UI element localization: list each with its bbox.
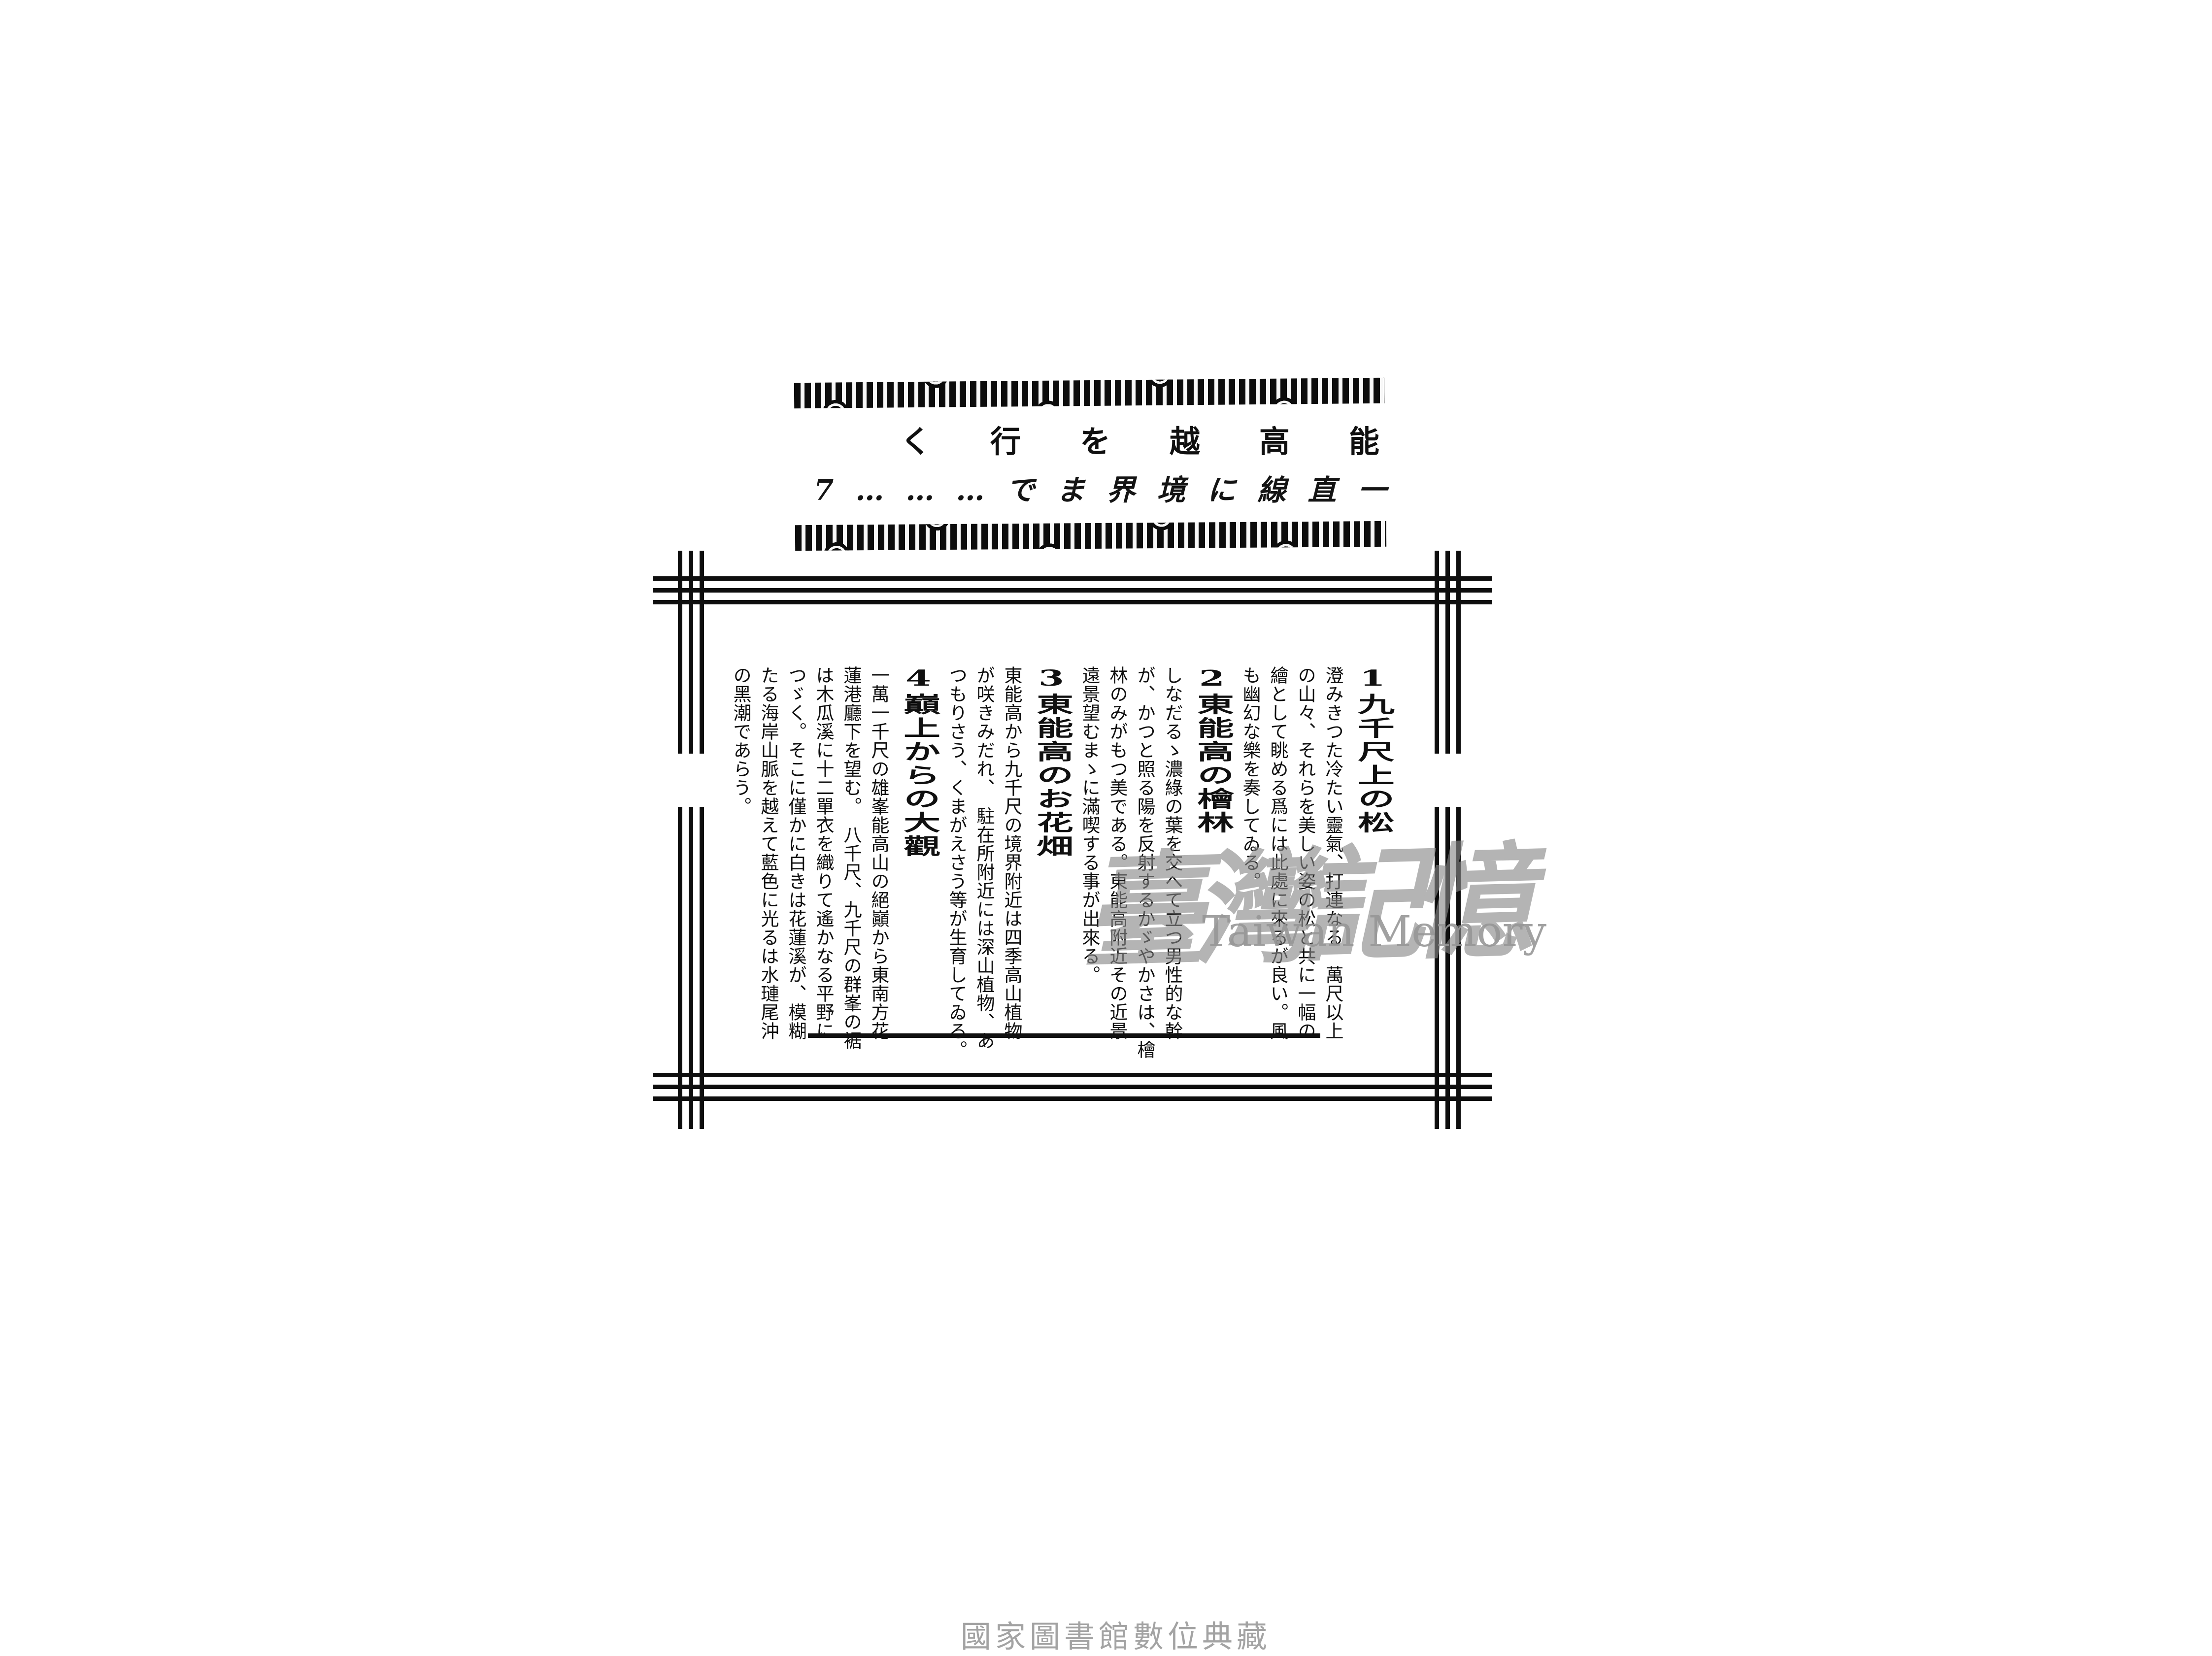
woodgrain-strip-bottom <box>795 521 1386 551</box>
woodgrain-strip-top <box>794 378 1384 408</box>
section-4-heading: 4巔上からの大觀 <box>896 666 939 1065</box>
frame-rule-left-upper <box>678 551 704 754</box>
section-3-flower-field: 3東能高のお花畑 東能高から九千尺の境界附近は四季高山植物 が咲きみだれ、 駐在… <box>942 666 1064 1065</box>
section-3-title: 東能高のお花畑 <box>1030 693 1073 859</box>
section-4-summit-panorama: 4巔上からの大觀 一萬一千尺の雄峯能高山の絕巓から東南方花 蓮港廳下を望む。 八… <box>727 666 931 1065</box>
section-3-body: 東能高から九千尺の境界附近は四季高山植物 が咲きみだれ、 駐在所附近には深山植物… <box>942 666 1025 1065</box>
footer-archive-credit: 國家圖書館數位典藏 <box>961 1612 1271 1656</box>
end-of-article-rule <box>808 1033 1320 1038</box>
watermark-latin-text: Taiwan Memory <box>1202 907 1546 957</box>
section-1-number: 1 <box>1351 666 1394 693</box>
section-4-body: 一萬一千尺の雄峯能高山の絕巓から東南方花 蓮港廳下を望む。 八千尺、九千尺の群峯… <box>727 666 892 1065</box>
frame-rule-right-upper <box>1435 551 1461 754</box>
page-subtitle: 7………でま界境に線直一 <box>814 467 1408 508</box>
section-4-title: 巔上からの大觀 <box>897 693 940 859</box>
watermark-cjk-logo: 臺灣記憶 <box>1079 802 1521 992</box>
section-4-number: 4 <box>897 666 940 693</box>
section-2-number: 2 <box>1191 666 1234 693</box>
section-3-heading: 3東能高のお花畑 <box>1029 666 1072 1065</box>
frame-rule-bottom <box>653 1073 1492 1101</box>
frame-rule-left-lower <box>678 807 704 1129</box>
section-3-number: 3 <box>1030 666 1073 693</box>
frame-rule-top <box>653 576 1492 604</box>
page-title: く行を越高能 <box>901 417 1439 461</box>
